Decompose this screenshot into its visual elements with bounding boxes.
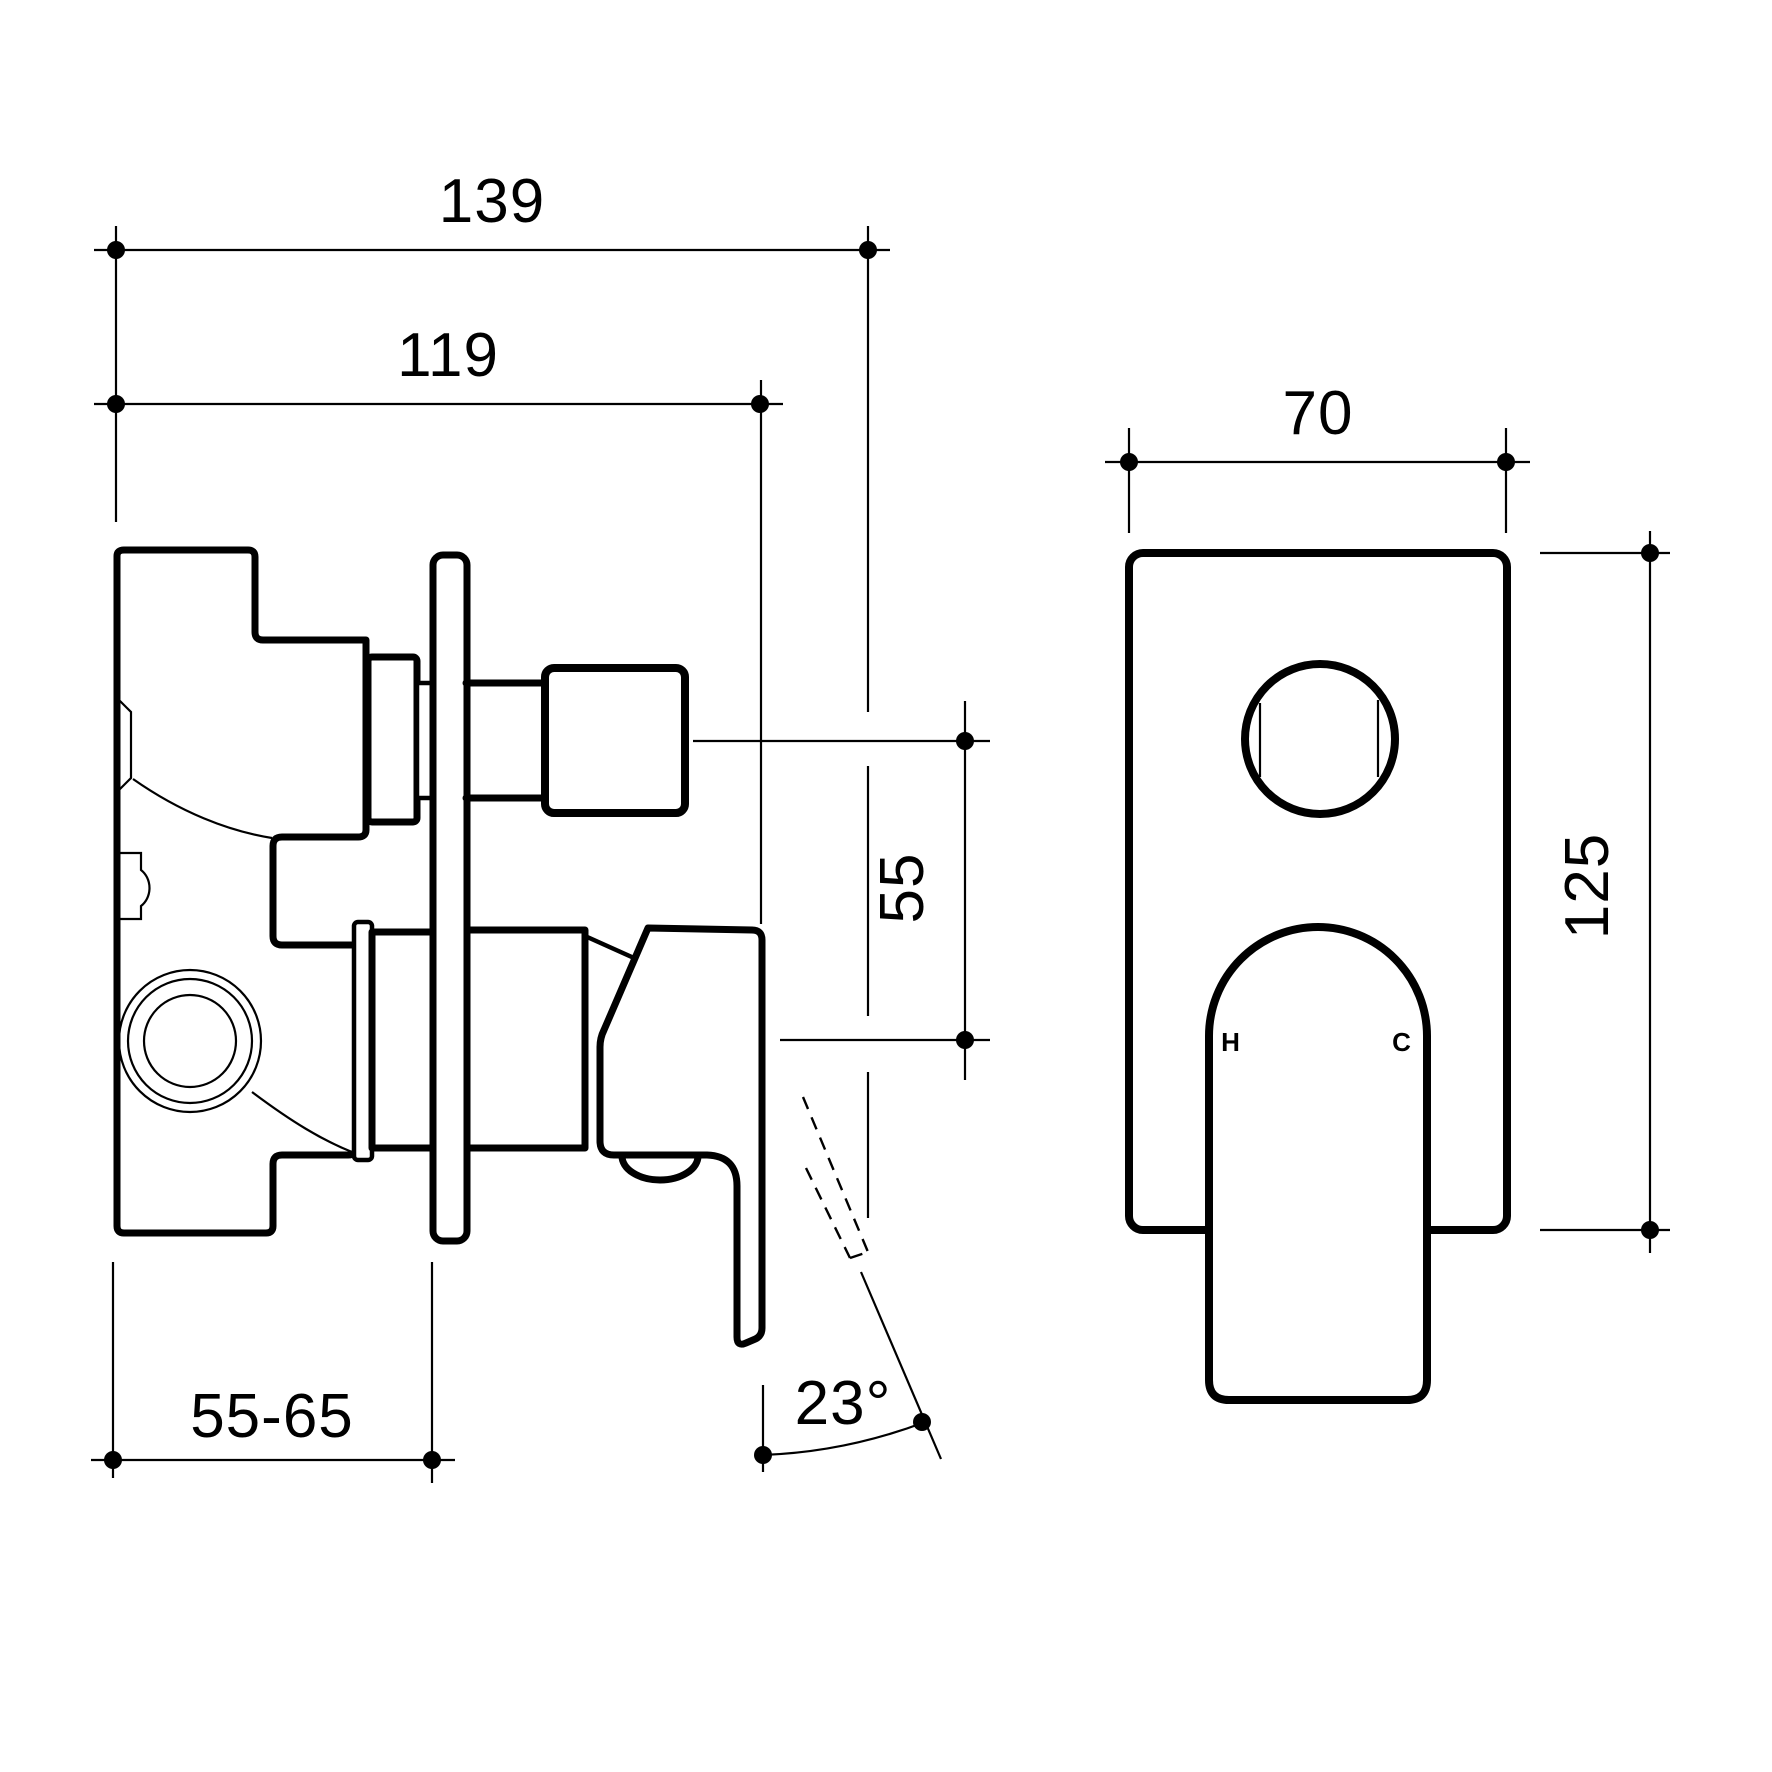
dim-70-label: 70 xyxy=(1283,379,1354,448)
diverter-flange xyxy=(368,657,417,822)
front-view: H C 70 125 xyxy=(1105,379,1670,1400)
dim-55-65: 55-65 xyxy=(91,1262,455,1483)
mixer-dimension-diagram: 139 119 55 55-65 xyxy=(0,0,1772,1772)
side-view: 139 119 55 55-65 xyxy=(91,167,990,1483)
handle-dashed-position xyxy=(803,1097,868,1258)
handle-back-edge xyxy=(585,936,634,958)
dim-119-label: 119 xyxy=(397,321,499,390)
wall-plate-side xyxy=(433,555,467,1241)
valve-body-outline xyxy=(117,550,366,1233)
dim-angle-23: 23° xyxy=(754,1272,941,1472)
dim-139-label: 139 xyxy=(439,167,545,236)
dim-125-label: 125 xyxy=(1553,833,1622,939)
cartridge-sleeve xyxy=(467,930,585,1148)
handle-lever-side xyxy=(600,928,762,1344)
dim-70: 70 xyxy=(1105,379,1530,533)
dim-23-label: 23° xyxy=(795,1369,892,1438)
cold-marker: C xyxy=(1392,1027,1412,1057)
drawing-canvas: 139 119 55 55-65 xyxy=(0,0,1772,1772)
handle-front xyxy=(1209,927,1427,1400)
diverter-knob-front xyxy=(1245,664,1395,814)
dim-125: 125 xyxy=(1540,531,1670,1253)
dim-55-65-label: 55-65 xyxy=(190,1382,354,1451)
dim-55-label: 55 xyxy=(868,853,937,924)
hot-marker: H xyxy=(1221,1027,1241,1057)
cartridge-flange xyxy=(372,932,433,1148)
handle-pivot-dome xyxy=(622,1156,698,1180)
diverter-knob-side xyxy=(545,668,685,813)
